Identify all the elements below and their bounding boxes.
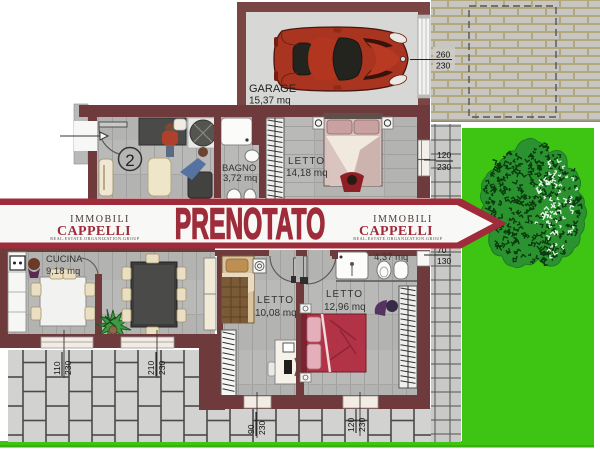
svg-text:12,96 mq: 12,96 mq bbox=[324, 302, 366, 313]
svg-text:REAL.ESTATE.ORGANIZATION.GROUP: REAL.ESTATE.ORGANIZATION.GROUP bbox=[50, 236, 140, 241]
svg-text:10,08 mq: 10,08 mq bbox=[255, 308, 297, 319]
svg-text:230: 230 bbox=[436, 61, 450, 71]
svg-text:120: 120 bbox=[437, 150, 451, 160]
svg-text:LETTO: LETTO bbox=[257, 295, 294, 306]
svg-text:90: 90 bbox=[246, 424, 256, 434]
svg-text:230: 230 bbox=[437, 162, 451, 172]
svg-text:GARAGE: GARAGE bbox=[249, 83, 296, 95]
svg-text:110: 110 bbox=[52, 361, 62, 375]
svg-text:210: 210 bbox=[146, 361, 156, 375]
svg-text:230: 230 bbox=[357, 418, 367, 432]
svg-text:LETTO: LETTO bbox=[288, 156, 325, 167]
svg-text:230: 230 bbox=[157, 361, 167, 375]
svg-text:230: 230 bbox=[257, 421, 267, 435]
svg-text:130: 130 bbox=[437, 256, 451, 266]
svg-text:15,37 mq: 15,37 mq bbox=[249, 96, 291, 107]
svg-text:PRENOTATO: PRENOTATO bbox=[175, 199, 326, 248]
svg-text:2: 2 bbox=[125, 151, 134, 170]
svg-text:9,18 mq: 9,18 mq bbox=[46, 266, 80, 277]
svg-text:LETTO: LETTO bbox=[326, 289, 363, 300]
svg-text:3,72 mq: 3,72 mq bbox=[223, 173, 257, 184]
svg-text:CUCINA: CUCINA bbox=[46, 254, 83, 265]
svg-text:260: 260 bbox=[436, 50, 450, 60]
svg-text:REAL.ESTATE.ORGANIZATION.GROUP: REAL.ESTATE.ORGANIZATION.GROUP bbox=[353, 236, 443, 241]
svg-text:14,18 mq: 14,18 mq bbox=[286, 168, 328, 179]
svg-text:120: 120 bbox=[346, 418, 356, 432]
svg-text:230: 230 bbox=[63, 361, 73, 375]
